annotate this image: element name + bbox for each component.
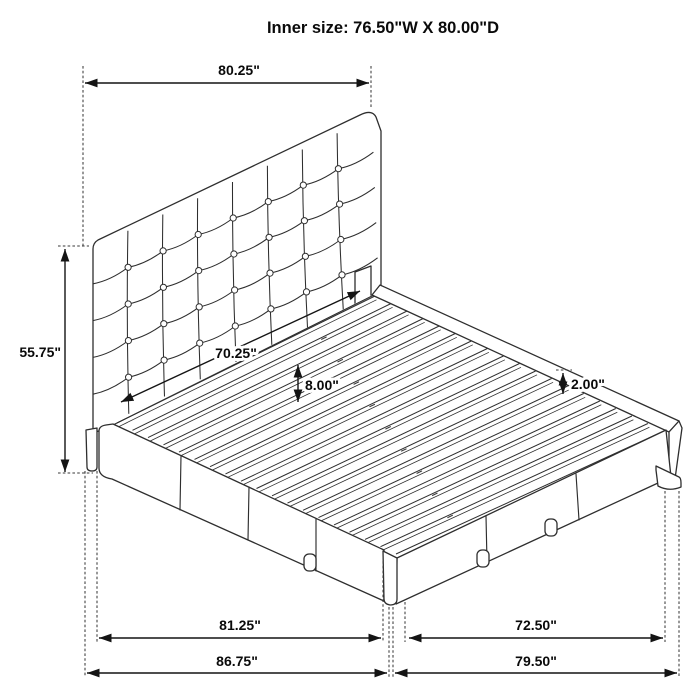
tuft-button bbox=[197, 340, 203, 346]
diagram-canvas: Inner size: 76.50"W X 80.00"D 80.25" 55.… bbox=[0, 0, 700, 700]
support-foot bbox=[477, 550, 489, 567]
dim-slat-height: 8.00" bbox=[305, 377, 339, 393]
tuft-button bbox=[195, 231, 201, 237]
tuft-button bbox=[303, 289, 309, 295]
tuft-button bbox=[268, 306, 274, 312]
tuft-button bbox=[161, 357, 167, 363]
tuft-button bbox=[267, 270, 273, 276]
dim-base-front-outer: 86.75" bbox=[216, 653, 258, 669]
headboard-left-leg bbox=[86, 428, 97, 471]
tuft-button bbox=[301, 218, 307, 224]
dimension-diagram: Inner size: 76.50"W X 80.00"D 80.25" 55.… bbox=[0, 0, 700, 700]
tuft-button bbox=[196, 268, 202, 274]
dim-headboard-height: 55.75" bbox=[19, 344, 61, 360]
dim-headboard-width: 80.25" bbox=[218, 62, 260, 78]
dim-base-side-outer: 79.50" bbox=[515, 653, 557, 669]
tuft-button bbox=[230, 215, 236, 221]
right-rail-cap bbox=[669, 421, 682, 479]
tuft-button bbox=[161, 321, 167, 327]
tuft-button bbox=[232, 323, 238, 329]
tuft-button bbox=[126, 374, 132, 380]
tuft-button bbox=[339, 272, 345, 278]
tuft-button bbox=[300, 182, 306, 188]
support-foot bbox=[545, 519, 557, 536]
tuft-button bbox=[196, 304, 202, 310]
tuft-button bbox=[265, 199, 271, 205]
tuft-button bbox=[125, 264, 131, 270]
dim-inner-width: 70.25" bbox=[215, 345, 257, 361]
tuft-button bbox=[266, 234, 272, 240]
support-foot bbox=[304, 554, 316, 571]
dim-base-side-inner: 72.50" bbox=[515, 617, 557, 633]
tuft-button bbox=[232, 287, 238, 293]
tuft-button bbox=[160, 248, 166, 254]
corner-post bbox=[383, 551, 397, 605]
tuft-button bbox=[160, 284, 166, 290]
tuft-button bbox=[125, 301, 131, 307]
tuft-button bbox=[231, 251, 237, 257]
tuft-button bbox=[302, 253, 308, 259]
tuft-button bbox=[125, 338, 131, 344]
tuft-button bbox=[335, 166, 341, 172]
dim-base-front-inner: 81.25" bbox=[219, 617, 261, 633]
diagram-title: Inner size: 76.50"W X 80.00"D bbox=[267, 19, 499, 37]
tuft-button bbox=[337, 201, 343, 207]
tuft-button bbox=[338, 236, 344, 242]
dim-rail-lip: 2.00" bbox=[571, 376, 605, 392]
